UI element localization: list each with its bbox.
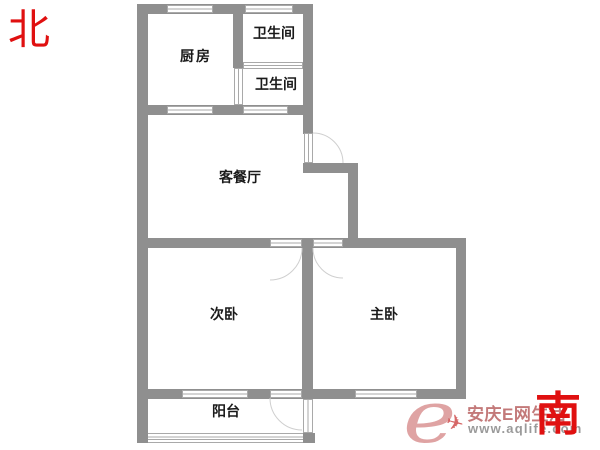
window-bath-divider <box>243 62 303 69</box>
room-label-master-bedroom: 主卧 <box>370 304 398 324</box>
room-label-living-dining: 客餐厅 <box>219 167 261 187</box>
room-label-kitchen: 厨房 <box>180 46 212 66</box>
room-label-bath-bottom: 卫生间 <box>255 74 297 94</box>
door-bathroom2 <box>234 68 243 105</box>
window-kitchen-south <box>167 106 213 114</box>
wall-kitchen-bath-divider <box>233 14 243 68</box>
wall-west <box>137 4 148 443</box>
door-second-bedroom <box>270 239 302 247</box>
window-bath-north <box>245 5 293 13</box>
door-balcony <box>270 390 302 398</box>
room-label-balcony: 阳台 <box>212 401 240 421</box>
door-master-bedroom <box>313 239 343 247</box>
master-bedroom-door-arc <box>313 248 343 278</box>
balcony-railing <box>148 433 303 443</box>
plane-icon: ✈ <box>444 411 466 436</box>
second-bedroom-door-arc <box>270 248 302 280</box>
floor-plan: 厨房 卫生间 卫生间 客餐厅 次卧 主卧 阳台 北 e 安庆E网生活 ✈ www… <box>0 0 600 450</box>
entry-door-arc <box>313 133 343 163</box>
wall-balcony-corner <box>303 433 315 443</box>
wall-master-east <box>456 238 466 399</box>
window-balcony-east <box>303 399 313 433</box>
door-entry <box>304 133 313 163</box>
wall-bedroom-divider <box>302 248 313 389</box>
room-label-bath-top: 卫生间 <box>253 23 295 43</box>
compass-south-label: 南 <box>535 392 581 438</box>
window-second-bedroom-balcony <box>182 390 248 398</box>
compass-north-label: 北 <box>8 10 50 52</box>
wall-living-east <box>348 163 358 248</box>
window-kitchen-north <box>167 5 213 13</box>
balcony-door-arc <box>270 398 302 430</box>
room-label-second-bedroom: 次卧 <box>210 304 238 324</box>
window-bath-south <box>243 106 288 114</box>
